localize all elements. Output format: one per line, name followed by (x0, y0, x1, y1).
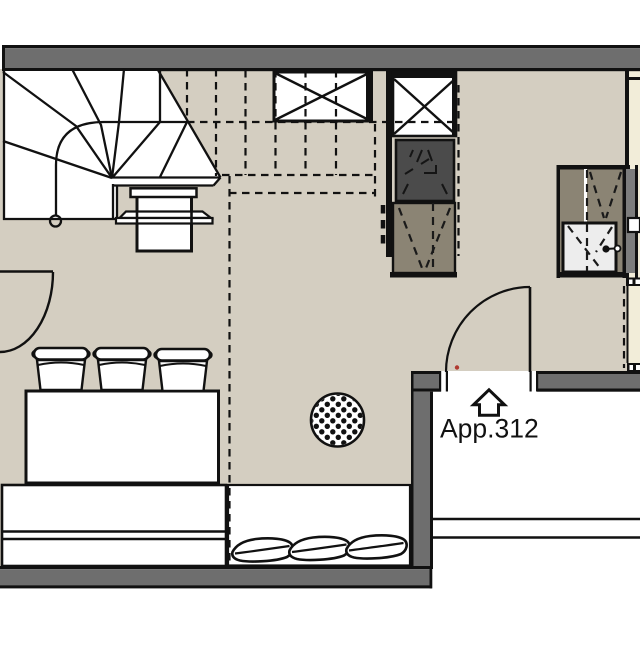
svg-text:App.312: App.312 (440, 414, 539, 444)
